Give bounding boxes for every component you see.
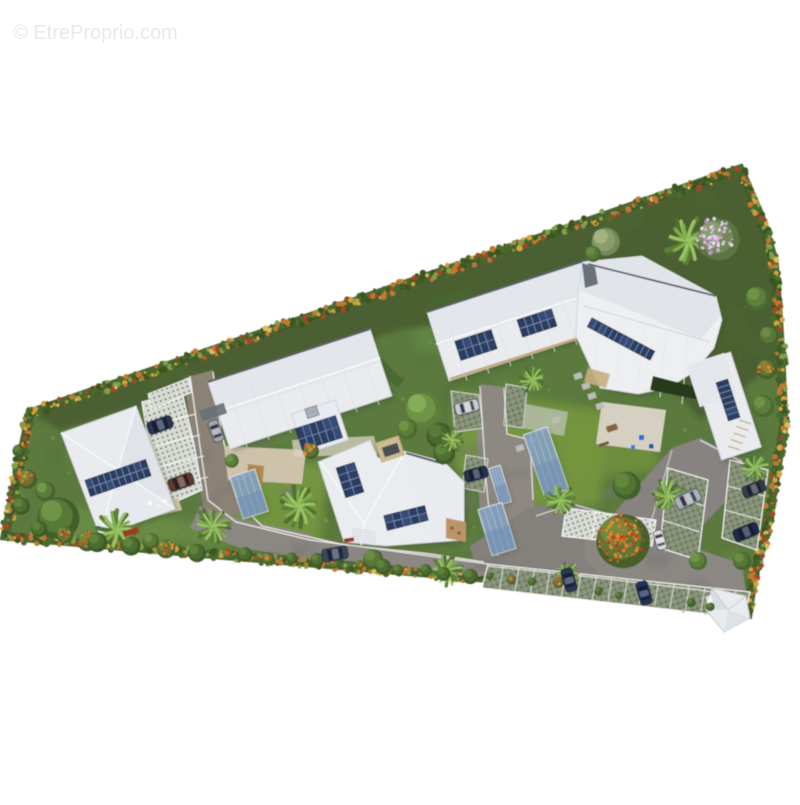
svg-text:© EtreProprio.com: © EtreProprio.com	[13, 22, 178, 44]
